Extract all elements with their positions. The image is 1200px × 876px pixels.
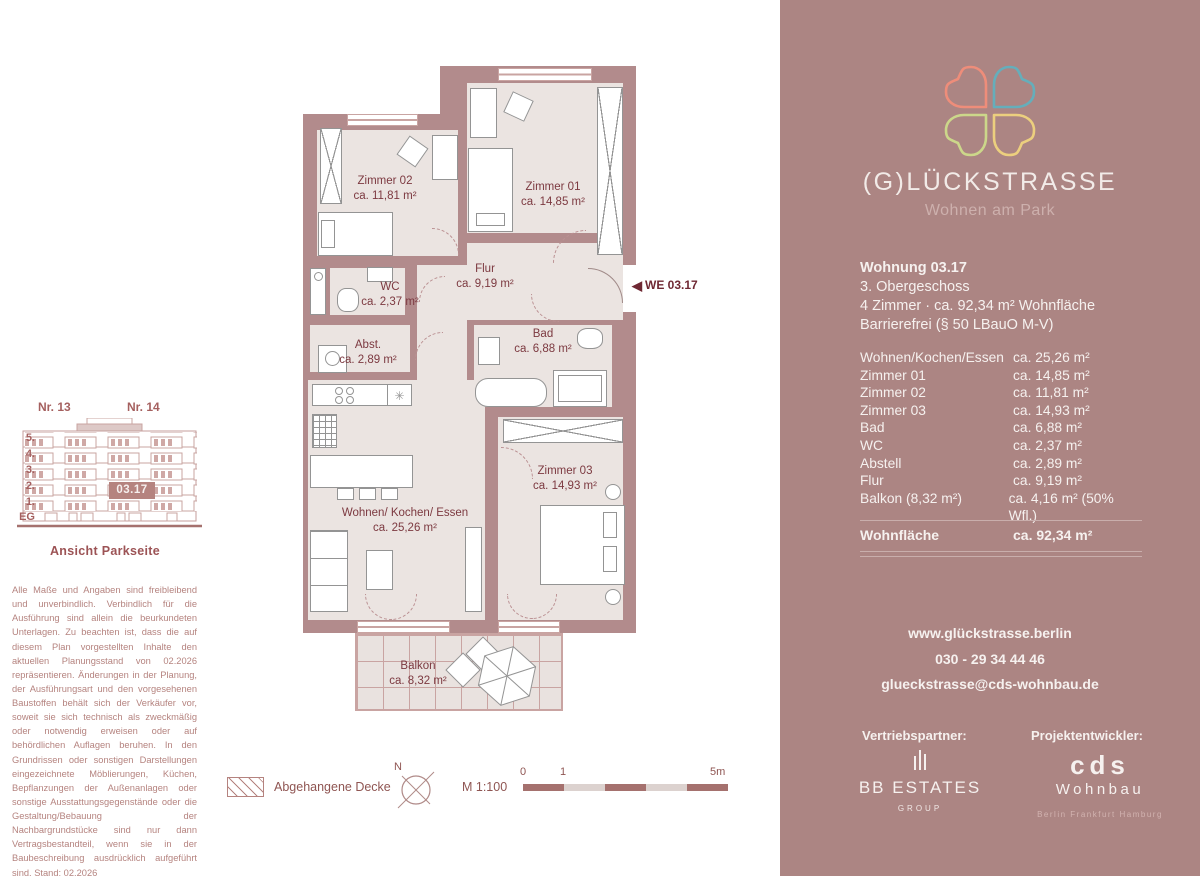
floor-label: 2.: [13, 480, 35, 492]
room-label-zimmer02: Zimmer 02 ca. 11,81 m²: [325, 174, 445, 204]
room-name: Zimmer 03: [500, 464, 630, 479]
table-row: Badca. 6,88 m²: [860, 419, 1142, 437]
sideboard: [465, 527, 482, 612]
total-area: ca. 92,34 m²: [1013, 527, 1092, 543]
cds-wohnbau-name: Wohnbau: [1020, 781, 1180, 798]
room-area: ca. 11,81 m²: [325, 189, 445, 204]
floor-label: 3.: [13, 464, 35, 476]
room-area: ca. 8,32 m²: [358, 674, 478, 689]
left-triangle-icon: ◀: [632, 279, 642, 292]
kitchen-cabinet: [312, 414, 337, 448]
table-row: Abstellca. 2,89 m²: [860, 455, 1142, 473]
elevation-drawing: [17, 418, 202, 530]
pillow: [603, 546, 617, 572]
table-row: Flurca. 9,19 m²: [860, 472, 1142, 490]
highlighted-unit-badge: 03.17: [109, 482, 155, 499]
disclaimer-text: Alle Maße und Angaben sind freibleibend …: [12, 583, 197, 876]
duct-shaft: [310, 268, 326, 315]
total-label: Wohnfläche: [860, 527, 1013, 543]
balcony-door-window: [357, 621, 450, 633]
divider: [860, 556, 1142, 557]
divider: [860, 551, 1142, 552]
room-area: ca. 2,37 m²: [1013, 437, 1082, 455]
freezer-icon: ✳: [387, 384, 412, 406]
room-area: ca. 25,26 m²: [320, 521, 490, 536]
table-row: Wohnen/Kochen/Essenca. 25,26 m²: [860, 349, 1142, 367]
brochure-page: ✳: [0, 0, 1200, 876]
wardrobe: [597, 87, 623, 255]
bathtub: [475, 378, 547, 407]
room-label-zimmer01: Zimmer 01 ca. 14,85 m²: [488, 180, 618, 210]
wardrobe: [503, 419, 623, 443]
scale-bar-segment: [646, 784, 687, 791]
room-area: ca. 14,93 m²: [1013, 402, 1090, 420]
contact-block: www.glückstrasse.berlin 030 - 29 34 44 4…: [780, 621, 1200, 698]
room-label: Zimmer 01: [860, 367, 1013, 385]
chair: [337, 488, 354, 500]
divider: [860, 520, 1142, 521]
apartment-summary: Wohnung 03.17 3. Obergeschoss 4 Zimmer ·…: [860, 259, 1160, 335]
room-label-flur: Flur ca. 9,19 m²: [425, 262, 545, 292]
scale-bar-segment: [564, 784, 605, 791]
window: [347, 114, 418, 126]
room-area: ca. 14,85 m²: [488, 195, 618, 210]
room-name: Wohnen/ Kochen/ Essen: [320, 506, 490, 521]
room-name: Bad: [483, 327, 603, 342]
pillow: [476, 213, 505, 226]
room-area: ca. 2,37 m²: [335, 295, 445, 310]
balcony-door-window: [498, 621, 560, 633]
brand-title: (G)LÜCKSTRASSE: [780, 168, 1200, 197]
sofa: [310, 530, 348, 612]
apartment-accessibility: Barrierefrei (§ 50 LBauO M-V): [860, 316, 1160, 335]
room-area: ca. 6,88 m²: [483, 342, 603, 357]
scale-bar-segment: [605, 784, 646, 791]
scale-label: M 1:100: [462, 780, 507, 794]
room-name: Zimmer 02: [325, 174, 445, 189]
cds-wohnbau-logo: cds Wohnbau Berlin Frankfurt Hamburg: [1020, 752, 1180, 819]
chair: [359, 488, 376, 500]
apartment-floor: 3. Obergeschoss: [860, 278, 1160, 297]
room-area: ca. 6,88 m²: [1013, 419, 1082, 437]
website-link[interactable]: www.glückstrasse.berlin: [780, 621, 1200, 647]
table-row: Zimmer 03ca. 14,93 m²: [860, 402, 1142, 420]
bb-estates-group: GROUP: [840, 804, 1000, 813]
desk: [470, 88, 497, 138]
room-area-table: Wohnen/Kochen/Essenca. 25,26 m² Zimmer 0…: [860, 349, 1142, 507]
room-label: WC: [860, 437, 1013, 455]
phone-number: 030 - 29 34 44 46: [780, 647, 1200, 673]
north-label: N: [394, 761, 402, 773]
table-row: WCca. 2,37 m²: [860, 437, 1142, 455]
apartment-size: 4 Zimmer · ca. 92,34 m² Wohnfläche: [860, 297, 1160, 316]
room-label: Wohnen/Kochen/Essen: [860, 349, 1013, 367]
floor-plan: ✳: [295, 62, 640, 717]
room-area: ca. 14,85 m²: [1013, 367, 1090, 385]
stove-burner: [346, 396, 354, 404]
email-link[interactable]: glueckstrasse@cds-wohnbau.de: [780, 672, 1200, 698]
apartment-title: Wohnung 03.17: [860, 259, 1160, 278]
room-label-zimmer03: Zimmer 03 ca. 14,93 m²: [500, 464, 630, 494]
room-label: Abstell: [860, 455, 1013, 473]
duct-icon: [314, 272, 323, 281]
room-label: Balkon (8,32 m²): [860, 490, 1009, 508]
unit-marker-label: WE 03.17: [645, 278, 698, 292]
stove-burner: [346, 387, 354, 395]
floor-label: 5.: [13, 432, 35, 444]
room-label-balkon: Balkon ca. 8,32 m²: [358, 659, 478, 689]
bb-estates-bars-icon: [913, 750, 928, 770]
table-row: Zimmer 01ca. 14,85 m²: [860, 367, 1142, 385]
suspended-ceiling-hatch-icon: [227, 777, 264, 797]
room-name: Flur: [425, 262, 545, 277]
room-area: ca. 2,89 m²: [313, 353, 423, 368]
room-label: Zimmer 02: [860, 384, 1013, 402]
room-area: ca. 4,16 m² (50% Wfl.): [1009, 490, 1142, 508]
room-label-wohnen: Wohnen/ Kochen/ Essen ca. 25,26 m²: [320, 506, 490, 536]
table-row: Balkon (8,32 m²)ca. 4,16 m² (50% Wfl.): [860, 490, 1142, 508]
room-name: Abst.: [313, 338, 423, 353]
room-area: ca. 14,93 m²: [500, 479, 630, 494]
cds-cities: Berlin Frankfurt Hamburg: [1020, 810, 1180, 819]
house-number-left: Nr. 13: [38, 400, 71, 414]
room-name: Zimmer 01: [488, 180, 618, 195]
kitchen-island: [310, 455, 413, 488]
table-row: Zimmer 02ca. 11,81 m²: [860, 384, 1142, 402]
floor-label: 1.: [13, 496, 35, 508]
floor-label: EG: [13, 511, 35, 523]
room-label: Bad: [860, 419, 1013, 437]
room-area: ca. 25,26 m²: [1013, 349, 1090, 367]
room-area: ca. 9,19 m²: [1013, 472, 1082, 490]
coffee-table: [366, 550, 393, 590]
floor-label: 4.: [13, 448, 35, 460]
scale-tick: 5m: [710, 766, 725, 778]
bb-estates-name: BB ESTATES: [840, 778, 1000, 798]
north-arrow-icon: N: [392, 758, 438, 812]
room-area: ca. 11,81 m²: [1013, 384, 1089, 402]
nightstand: [605, 589, 621, 605]
brand-subtitle: Wohnen am Park: [780, 202, 1200, 220]
cds-name: cds: [1020, 752, 1180, 778]
sales-partner-label: Vertriebspartner:: [862, 728, 967, 743]
scale-bar-segment: [687, 784, 728, 791]
chair: [381, 488, 398, 500]
house-number-right: Nr. 14: [127, 400, 160, 414]
clover-hearts-logo: [935, 56, 1045, 166]
total-area-row: Wohnfläche ca. 92,34 m²: [860, 527, 1142, 543]
hatch-legend-label: Abgehangene Decke: [274, 780, 391, 794]
room-label-abst: Abst. ca. 2,89 m²: [313, 338, 423, 368]
stove-burner: [335, 396, 343, 404]
info-panel: (G)LÜCKSTRASSE Wohnen am Park Wohnung 03…: [780, 0, 1200, 876]
bb-estates-logo: BB ESTATES GROUP: [840, 750, 1000, 813]
stove-burner: [335, 387, 343, 395]
scale-tick: 0: [520, 766, 526, 778]
pillow: [603, 512, 617, 538]
developer-label: Projektentwickler:: [1031, 728, 1143, 743]
room-name: Balkon: [358, 659, 478, 674]
room-area: ca. 9,19 m²: [425, 277, 545, 292]
building-elevation: Nr. 13 Nr. 14: [5, 392, 205, 577]
window: [498, 68, 592, 81]
room-label-bad: Bad ca. 6,88 m²: [483, 327, 603, 357]
elevation-caption: Ansicht Parkseite: [5, 544, 205, 558]
scale-bar-segment: [523, 784, 564, 791]
pillow: [321, 220, 335, 248]
room-area: ca. 2,89 m²: [1013, 455, 1082, 473]
shower: [553, 370, 607, 407]
unit-entrance-marker: ◀ WE 03.17: [632, 278, 698, 292]
room-label: Flur: [860, 472, 1013, 490]
room-label: Zimmer 03: [860, 402, 1013, 420]
scale-tick: 1: [560, 766, 566, 778]
